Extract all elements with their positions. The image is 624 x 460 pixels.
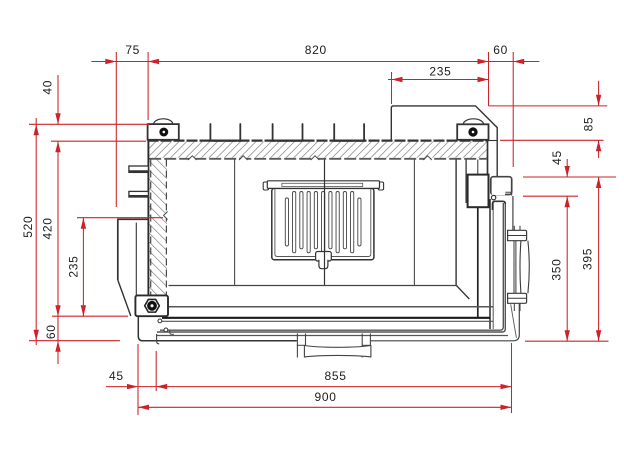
svg-text:85: 85 — [582, 117, 596, 132]
svg-text:45: 45 — [550, 150, 564, 165]
svg-text:855: 855 — [325, 369, 347, 383]
svg-text:40: 40 — [41, 80, 55, 95]
svg-text:420: 420 — [41, 217, 55, 239]
svg-text:520: 520 — [21, 216, 35, 238]
svg-text:75: 75 — [125, 43, 140, 57]
svg-text:60: 60 — [493, 43, 508, 57]
svg-text:395: 395 — [580, 248, 594, 270]
svg-text:350: 350 — [549, 258, 563, 280]
svg-text:235: 235 — [67, 256, 81, 278]
svg-text:820: 820 — [305, 43, 327, 57]
svg-text:900: 900 — [315, 390, 337, 404]
svg-text:235: 235 — [429, 64, 451, 78]
svg-text:45: 45 — [109, 369, 124, 383]
svg-text:60: 60 — [44, 324, 58, 339]
